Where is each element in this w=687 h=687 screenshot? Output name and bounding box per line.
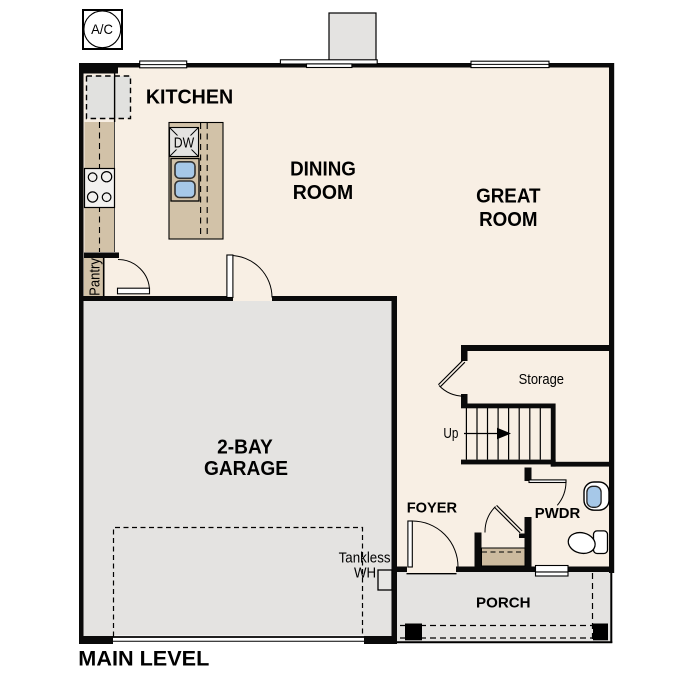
svg-text:A/C: A/C: [91, 21, 113, 37]
svg-text:ROOM: ROOM: [293, 182, 354, 204]
svg-text:MAIN LEVEL: MAIN LEVEL: [78, 648, 209, 671]
svg-text:WH: WH: [354, 565, 376, 582]
svg-text:Pantry: Pantry: [86, 258, 103, 296]
svg-text:Storage: Storage: [519, 371, 564, 388]
svg-text:GREAT: GREAT: [476, 186, 540, 208]
svg-text:Up: Up: [443, 425, 458, 442]
svg-text:DW: DW: [174, 135, 195, 152]
svg-text:KITCHEN: KITCHEN: [146, 86, 233, 108]
svg-text:FOYER: FOYER: [407, 500, 458, 517]
svg-text:GARAGE: GARAGE: [204, 458, 288, 480]
svg-text:ROOM: ROOM: [479, 209, 537, 231]
svg-text:PORCH: PORCH: [476, 595, 531, 612]
svg-text:2-BAY: 2-BAY: [217, 437, 273, 459]
svg-text:PWDR: PWDR: [535, 505, 581, 522]
svg-text:DINING: DINING: [290, 158, 356, 180]
